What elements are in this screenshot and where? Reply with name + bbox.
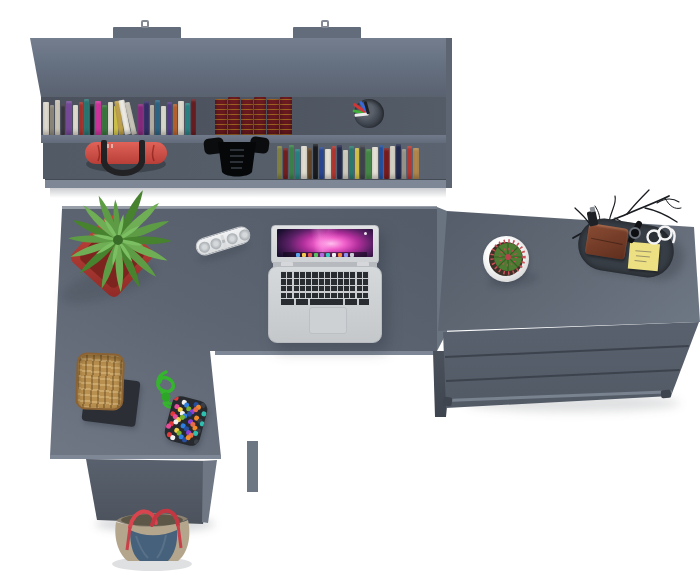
fern-center bbox=[113, 235, 123, 245]
book-spine bbox=[191, 99, 196, 135]
book-spine bbox=[102, 105, 107, 135]
laptop-keyboard-bottom-row bbox=[281, 299, 369, 305]
book-spine bbox=[173, 104, 177, 135]
wicker-basket bbox=[75, 352, 125, 411]
shelf-hook-icon bbox=[321, 20, 329, 28]
desk-front-edge bbox=[215, 351, 437, 355]
bottle-cap bbox=[590, 207, 596, 213]
book-spine bbox=[325, 149, 331, 179]
book-spine bbox=[95, 101, 101, 135]
macbook-laptop bbox=[268, 222, 382, 344]
book-spine bbox=[161, 106, 166, 135]
books-row-upper bbox=[43, 97, 217, 135]
book-spine bbox=[50, 105, 54, 135]
speaker-body bbox=[194, 224, 253, 258]
antique-book bbox=[267, 99, 279, 139]
dock-app-icon bbox=[332, 253, 336, 257]
book-spine bbox=[379, 145, 383, 179]
dock-app-icon bbox=[338, 253, 342, 257]
book-spine bbox=[372, 147, 378, 179]
bead bbox=[193, 430, 199, 436]
shelf-hook-icon bbox=[141, 20, 149, 28]
book-spine bbox=[150, 105, 154, 135]
shelf-side-panel bbox=[446, 38, 452, 188]
book-spine bbox=[277, 146, 282, 179]
speaker-grille-icon bbox=[238, 228, 252, 242]
desk-return-front-edge bbox=[50, 455, 221, 459]
bead bbox=[186, 411, 192, 417]
books-row-lower bbox=[277, 143, 433, 179]
book-spine bbox=[313, 144, 318, 179]
laptop-dock bbox=[283, 252, 367, 257]
book-spine bbox=[61, 104, 65, 135]
book-spine bbox=[144, 101, 149, 135]
book-spine bbox=[79, 102, 83, 135]
speaker-grille-icon bbox=[225, 232, 239, 246]
book-spine bbox=[73, 105, 78, 135]
wall-shelf-top-panel bbox=[28, 38, 446, 97]
book-spine bbox=[384, 148, 389, 179]
sideboard-foot bbox=[661, 390, 672, 399]
book-spine bbox=[355, 148, 359, 179]
pens bbox=[354, 99, 384, 128]
tote-bag bbox=[100, 500, 205, 571]
book-spine bbox=[349, 146, 354, 179]
book-spine bbox=[396, 144, 401, 179]
screen-highlight-dot bbox=[364, 232, 367, 235]
book-spine bbox=[66, 101, 72, 135]
book-spine bbox=[295, 149, 300, 179]
book-spine bbox=[90, 104, 94, 135]
book-spine bbox=[413, 148, 419, 179]
bead bbox=[166, 423, 172, 429]
book-spine bbox=[185, 103, 190, 135]
white-glasses bbox=[644, 219, 678, 253]
book-spine bbox=[366, 149, 371, 179]
bead bbox=[169, 434, 175, 440]
book-spine bbox=[84, 99, 89, 135]
laptop-keyboard bbox=[281, 271, 369, 298]
book-spine bbox=[319, 147, 324, 179]
rope-knot bbox=[162, 393, 171, 402]
dock-app-icon bbox=[320, 253, 324, 257]
dock-app-icon bbox=[314, 253, 318, 257]
antique-book bbox=[254, 97, 266, 139]
fern-plant bbox=[52, 182, 184, 306]
book-spine bbox=[332, 146, 336, 179]
book-spine bbox=[402, 149, 406, 179]
book-spine bbox=[407, 146, 412, 179]
book-spine bbox=[167, 102, 172, 135]
desk-side-panel bbox=[247, 441, 258, 492]
laptop-trackpad bbox=[309, 307, 347, 334]
book-spine bbox=[283, 148, 288, 179]
antique-book bbox=[241, 99, 253, 139]
sideboard-foot bbox=[442, 396, 452, 406]
dock-app-icon bbox=[326, 253, 330, 257]
dock-app-icon bbox=[350, 253, 354, 257]
antique-book bbox=[228, 97, 240, 139]
book-spine bbox=[138, 104, 143, 135]
dock-app-icon bbox=[308, 253, 312, 257]
cactus bbox=[487, 238, 529, 280]
book-spine bbox=[108, 102, 113, 135]
book-spine bbox=[343, 150, 348, 179]
bluetooth-speaker bbox=[192, 224, 254, 258]
antique-book bbox=[215, 99, 227, 139]
antique-book-set bbox=[215, 97, 295, 139]
book-spine bbox=[360, 145, 365, 179]
bead bbox=[200, 402, 206, 408]
dock-app-icon bbox=[344, 253, 348, 257]
book-spine bbox=[55, 100, 60, 135]
book-spine bbox=[43, 102, 49, 135]
book-spine bbox=[337, 145, 342, 179]
book-spine bbox=[301, 146, 307, 179]
wrist-watch bbox=[629, 227, 641, 239]
shelf-mount-tab bbox=[293, 27, 361, 39]
office-desk-set-render bbox=[0, 0, 700, 571]
book-spine bbox=[155, 100, 160, 135]
book-spine bbox=[178, 101, 184, 135]
dock-app-icon bbox=[302, 253, 306, 257]
book-spine bbox=[289, 145, 294, 179]
shelf-mount-tab bbox=[113, 27, 181, 39]
dock-app-icon bbox=[296, 253, 300, 257]
book-spine bbox=[390, 146, 395, 179]
book-spine bbox=[308, 148, 312, 179]
antique-book bbox=[280, 97, 292, 139]
